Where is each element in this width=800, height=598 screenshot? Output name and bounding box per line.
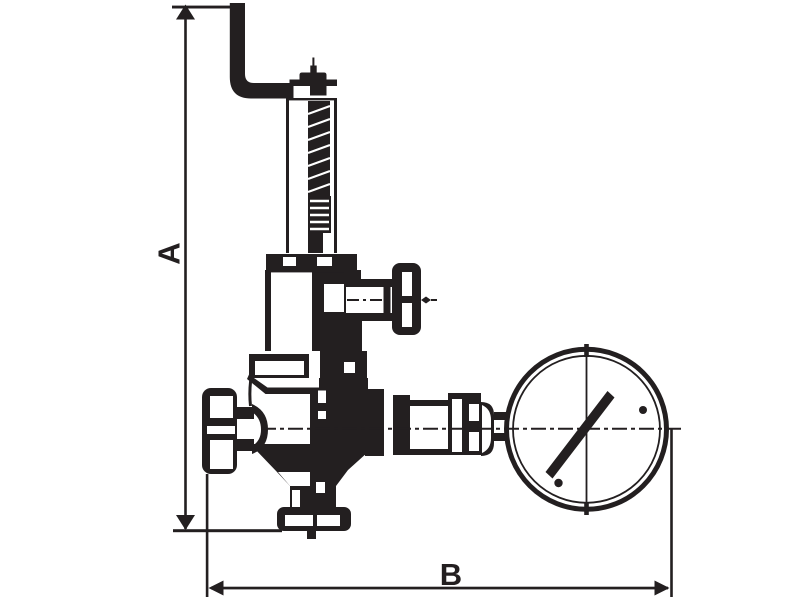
svg-text:B: B <box>440 557 462 592</box>
svg-text:A: A <box>152 242 187 264</box>
